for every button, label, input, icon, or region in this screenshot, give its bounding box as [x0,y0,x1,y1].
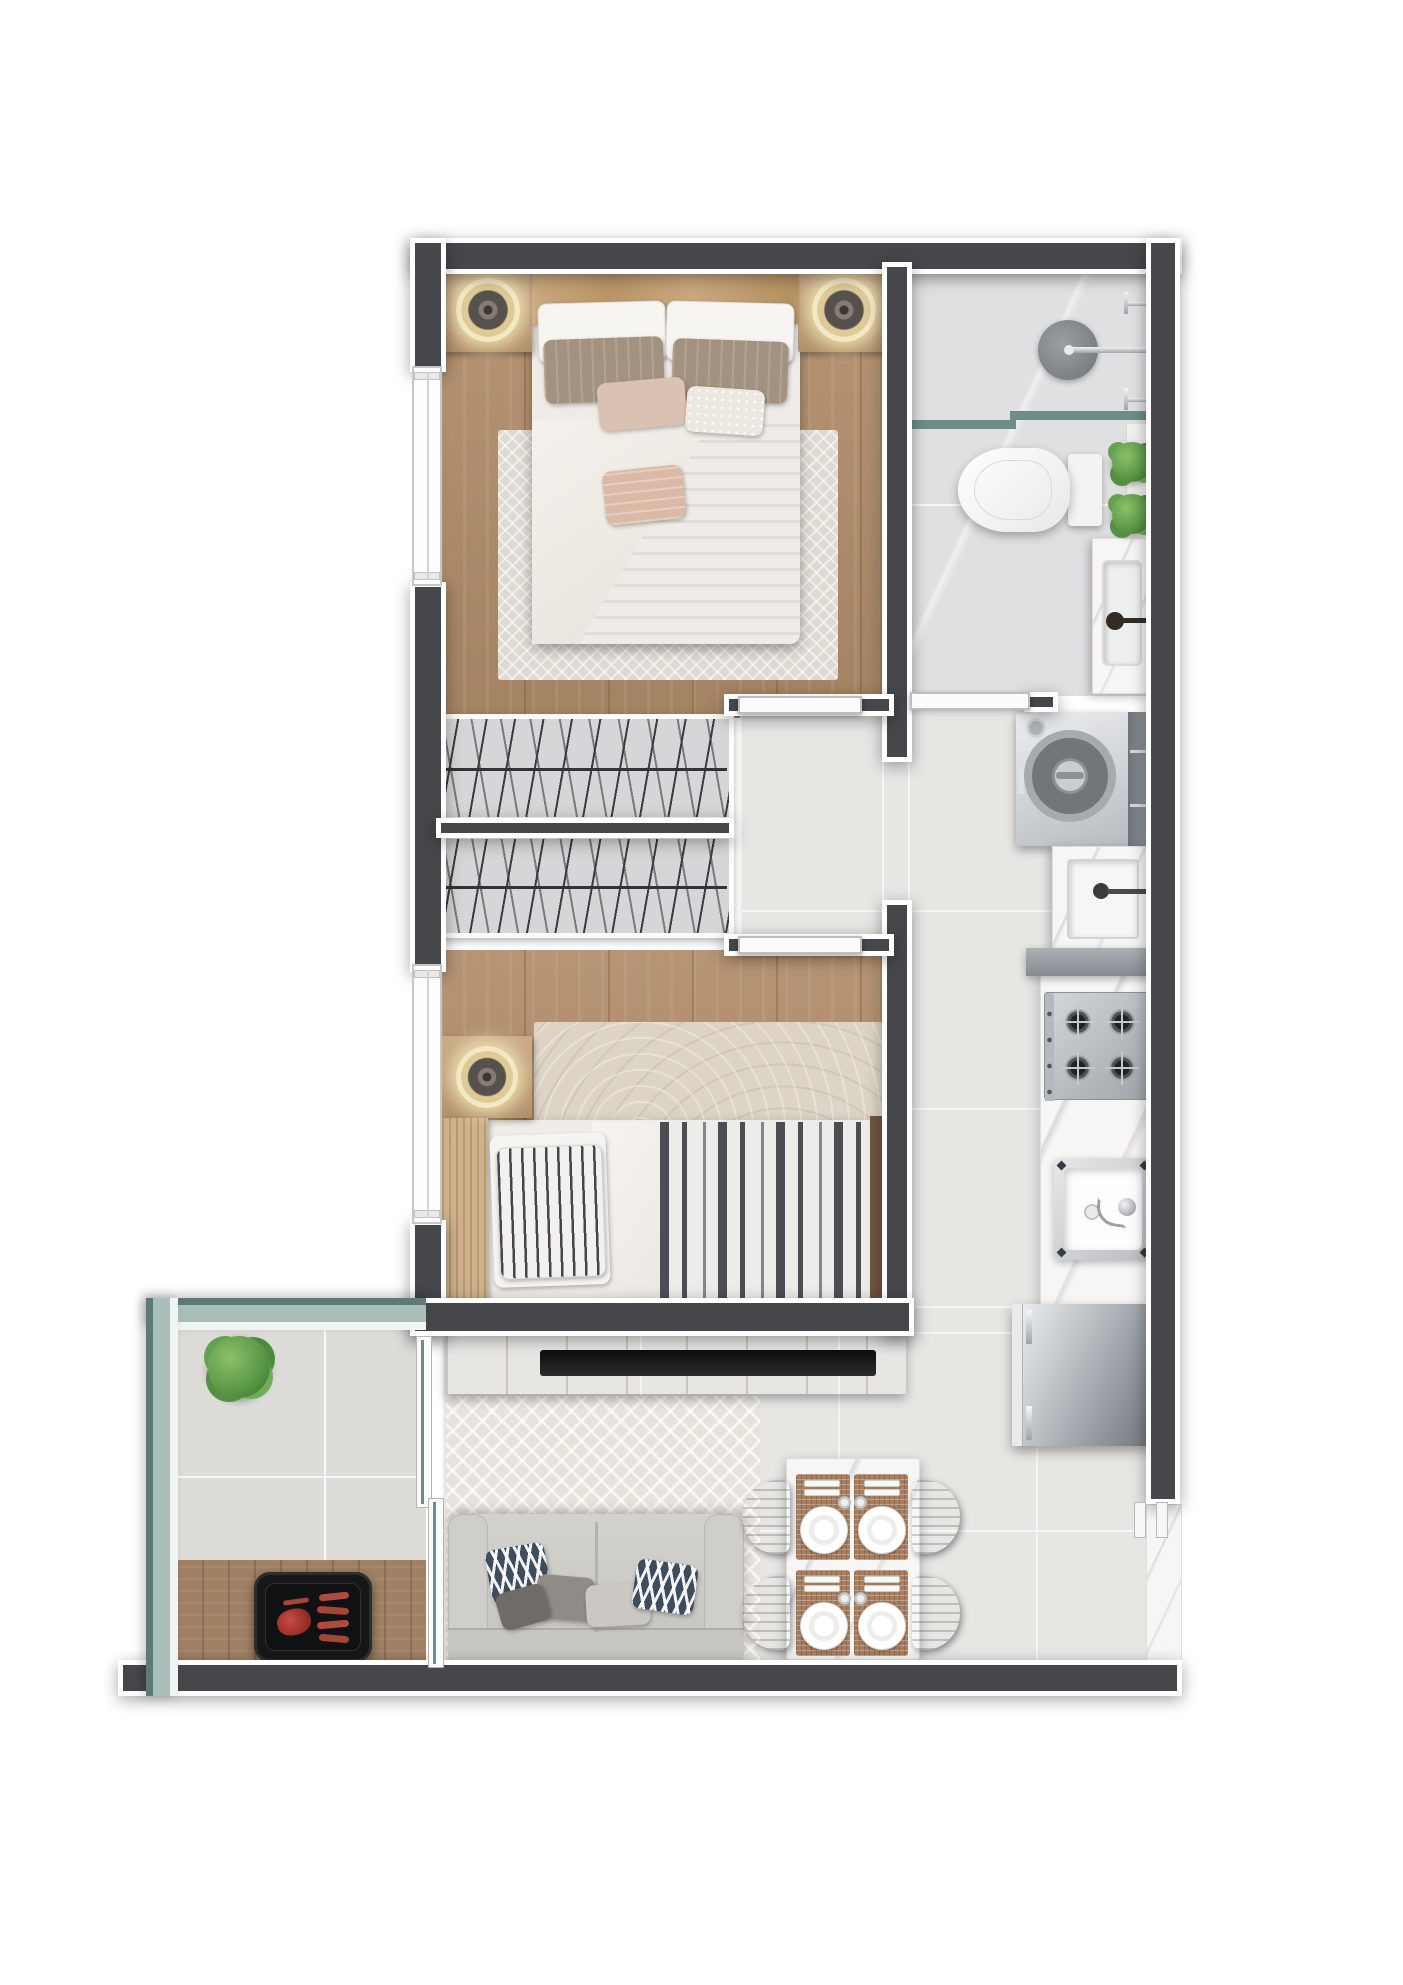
placemat [796,1570,850,1656]
floorplan-canvas [0,0,1403,1985]
sofa-pillow-chevron-2 [631,1558,699,1616]
bed2-headboard [442,1118,488,1304]
placemat [796,1474,850,1560]
refrigerator [1012,1304,1152,1446]
burner-icon [1105,1051,1139,1085]
cooktop-controls [1045,993,1054,1101]
shower-valve-1-stem [1126,302,1148,306]
balcony-plant-icon [208,1336,270,1398]
bed2-footboard [870,1116,882,1306]
shower-valve-2-stem [1126,398,1148,402]
entry-door-jamb [1156,1502,1168,1538]
burner-icon [1105,1005,1139,1039]
shower-glass-screen-left [908,420,1016,429]
vanity-basin [1102,560,1142,666]
wall-lamp-left-icon [456,278,520,342]
bedroom1-door [738,696,862,714]
plate-icon [800,1506,848,1554]
balcony-slider-panel-2 [428,1498,444,1668]
wall-bed1-bath [882,262,912,762]
shower-valve-1-handle-icon [1124,292,1128,314]
glass-icon [854,1496,867,1509]
fridge-edge [1012,1304,1023,1446]
kitchen-sink [1054,1158,1152,1260]
shower-arm [1066,347,1148,353]
shower-glass-screen-right [1010,411,1148,420]
glass-icon [854,1592,867,1605]
toilet-tank [1068,454,1102,526]
toilet-seat-line [974,460,1052,520]
bed1-pillow-lace [684,385,765,436]
wardrobe-rail-2 [438,834,734,938]
bed2-striped-pillow [496,1144,607,1280]
wall-top [410,238,1182,274]
washer-knob-icon [1026,718,1046,738]
bed1-throw-pillow [601,464,686,526]
tv [540,1350,876,1376]
glass-icon [838,1592,851,1605]
balcony-railing-top [146,1298,426,1330]
hall-floor [740,712,886,938]
laundry-tub-basin [1067,859,1139,939]
barbecue-grill [254,1572,372,1662]
burner-icon [1061,1005,1095,1039]
wall-bed2-kitchen [882,900,912,1336]
wall-left-mid [410,582,446,972]
wall-bed2-living [410,1298,914,1336]
washer-detergent-slot [1018,768,1024,794]
bedroom2-door [738,936,862,954]
glass-icon [838,1496,851,1509]
placemat [854,1570,908,1656]
burner-icon [1061,1051,1095,1085]
laundry-faucet-spout [1107,889,1151,894]
bedroom1-window [412,366,442,586]
bed1-pillow-blush [596,376,688,431]
wardrobe-rail-1 [438,714,734,822]
plate-icon [858,1602,906,1650]
wall-wardrobe-divider [436,818,734,838]
fridge-handle-bottom [1026,1406,1032,1440]
wall-lamp-right-icon [812,278,876,342]
washer-drum-handle [1056,772,1084,779]
shower-arm-joint [1064,345,1074,355]
laundry-tub [1052,846,1152,950]
fridge-handle-top [1026,1310,1032,1344]
washing-machine [1016,712,1130,846]
wall-bottom [118,1660,1182,1696]
placemat [854,1474,908,1560]
entry-door-jamb [1134,1502,1146,1538]
bathroom-door [910,692,1030,710]
wall-right [1146,238,1180,1504]
wall-left-top [410,238,446,372]
bedroom2-wall-lamp-icon [456,1046,518,1108]
plate-icon [800,1602,848,1650]
bed2-striped-duvet [660,1122,874,1302]
shower-valve-2-handle-icon [1124,388,1128,410]
service-half-wall [1026,948,1152,976]
balcony-slider-panel-1 [416,1336,432,1508]
balcony-railing-left [146,1298,178,1696]
bedroom2-window [412,964,442,1224]
plate-icon [858,1506,906,1554]
gas-cooktop [1044,992,1150,1100]
